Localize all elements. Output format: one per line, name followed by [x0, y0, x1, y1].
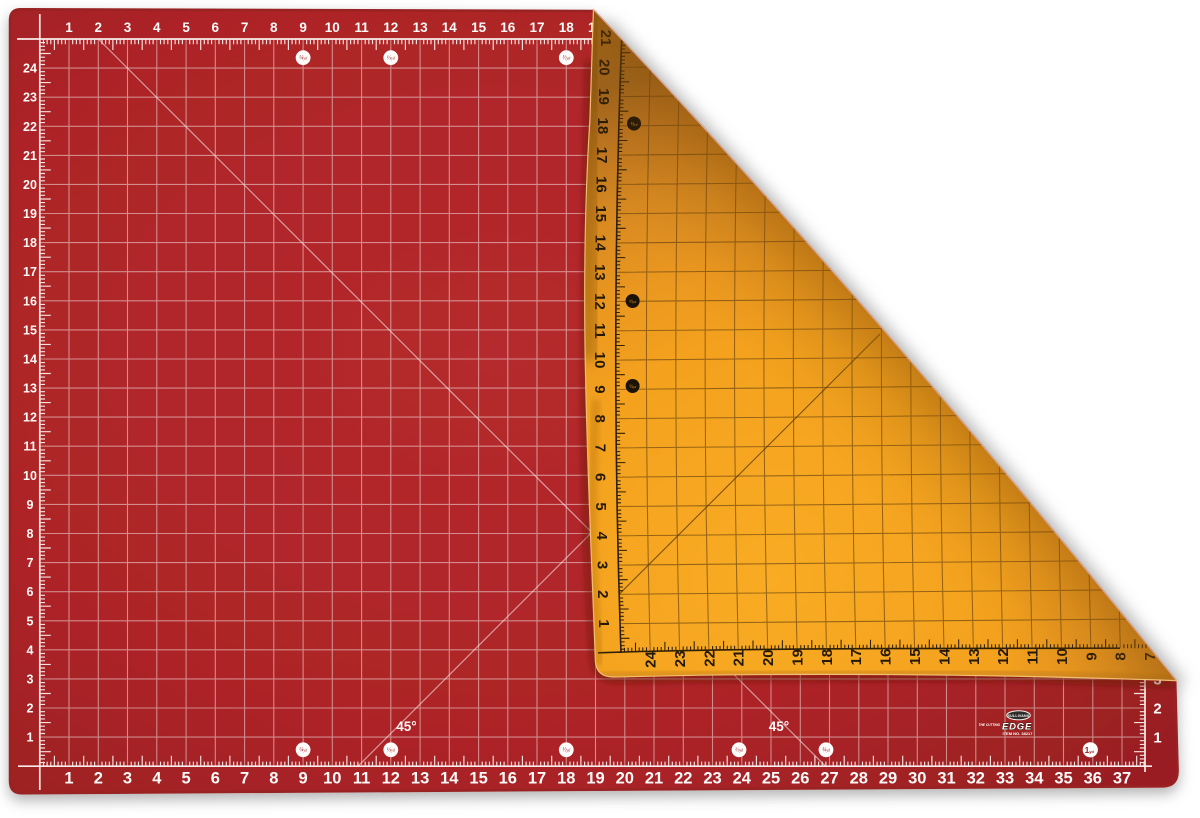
svg-text:13: 13: [411, 769, 429, 787]
svg-text:14: 14: [442, 20, 458, 35]
svg-text:THE CUTTING: THE CUTTING: [979, 723, 1001, 727]
svg-text:11: 11: [23, 440, 36, 454]
svg-text:25: 25: [762, 769, 780, 787]
svg-text:18: 18: [559, 20, 575, 35]
svg-text:23: 23: [703, 769, 721, 787]
svg-text:35: 35: [1054, 769, 1072, 787]
svg-text:18: 18: [23, 236, 37, 250]
svg-text:22: 22: [674, 769, 692, 787]
svg-text:31: 31: [937, 769, 955, 787]
svg-text:8: 8: [27, 527, 34, 541]
svg-text:20: 20: [616, 769, 634, 787]
svg-text:15: 15: [23, 323, 37, 337]
svg-text:5: 5: [182, 20, 190, 35]
svg-text:16: 16: [23, 294, 37, 308]
svg-text:2: 2: [95, 20, 103, 35]
svg-text:12: 12: [383, 20, 398, 35]
svg-text:6: 6: [27, 585, 34, 599]
svg-text:8: 8: [269, 769, 278, 787]
svg-text:16: 16: [500, 20, 516, 35]
svg-text:17: 17: [529, 20, 544, 35]
svg-text:30: 30: [908, 769, 926, 787]
svg-text:6: 6: [211, 769, 220, 787]
svg-text:24: 24: [733, 769, 752, 787]
svg-text:11: 11: [353, 769, 370, 787]
svg-text:2: 2: [94, 769, 103, 787]
svg-text:15: 15: [469, 769, 487, 787]
svg-text:19: 19: [23, 207, 37, 221]
svg-text:15: 15: [471, 20, 487, 35]
svg-text:6: 6: [212, 20, 220, 35]
svg-text:14: 14: [23, 353, 37, 367]
svg-text:10: 10: [325, 20, 340, 35]
svg-text:18: 18: [557, 769, 575, 787]
svg-text:4: 4: [27, 643, 34, 657]
svg-text:17: 17: [528, 769, 546, 787]
svg-text:5: 5: [27, 614, 34, 628]
svg-text:21: 21: [645, 769, 663, 787]
svg-text:10: 10: [23, 469, 37, 483]
svg-text:21: 21: [23, 149, 37, 163]
svg-text:13: 13: [413, 20, 429, 35]
svg-text:4: 4: [152, 769, 162, 787]
svg-text:26: 26: [791, 769, 809, 787]
svg-text:13: 13: [23, 382, 37, 396]
svg-text:3: 3: [123, 769, 132, 787]
svg-text:36: 36: [1084, 769, 1102, 787]
svg-text:14: 14: [440, 769, 459, 787]
svg-text:37: 37: [1113, 769, 1131, 787]
svg-text:1: 1: [64, 769, 73, 787]
svg-text:10: 10: [323, 769, 341, 787]
svg-text:24: 24: [23, 62, 37, 76]
svg-text:45°: 45°: [396, 719, 416, 734]
svg-text:9: 9: [299, 769, 308, 787]
svg-text:22: 22: [23, 120, 37, 134]
svg-text:7: 7: [241, 20, 249, 35]
svg-text:7: 7: [27, 556, 34, 570]
svg-text:5: 5: [182, 769, 191, 787]
svg-text:20: 20: [23, 178, 37, 192]
svg-text:11: 11: [354, 20, 369, 35]
svg-text:16: 16: [499, 769, 517, 787]
svg-text:SULLIVANS: SULLIVANS: [1008, 714, 1030, 718]
svg-text:28: 28: [850, 769, 868, 787]
svg-text:27: 27: [820, 769, 838, 787]
svg-text:3: 3: [27, 672, 34, 686]
svg-text:1: 1: [1153, 730, 1161, 747]
svg-text:9: 9: [299, 20, 307, 35]
svg-text:3: 3: [124, 20, 132, 35]
svg-text:34: 34: [1025, 769, 1044, 787]
svg-text:9: 9: [27, 498, 34, 512]
svg-text:ITEM NO. 38217: ITEM NO. 38217: [1002, 731, 1033, 736]
svg-text:32: 32: [967, 769, 985, 787]
svg-text:2: 2: [1153, 700, 1161, 717]
svg-text:8: 8: [270, 20, 278, 35]
svg-text:2: 2: [27, 702, 34, 716]
svg-text:12: 12: [382, 769, 400, 787]
svg-text:33: 33: [996, 769, 1014, 787]
svg-text:7: 7: [240, 769, 249, 787]
svg-text:17: 17: [23, 265, 37, 279]
svg-text:1: 1: [27, 731, 34, 745]
svg-text:½yd: ½yd: [562, 747, 570, 754]
svg-text:1: 1: [65, 20, 73, 35]
svg-text:12: 12: [23, 411, 37, 425]
svg-text:4: 4: [153, 20, 161, 35]
svg-text:45°: 45°: [769, 719, 789, 734]
svg-text:29: 29: [879, 769, 897, 787]
svg-text:½yd: ½yd: [562, 55, 570, 62]
svg-text:19: 19: [586, 769, 604, 787]
svg-text:23: 23: [23, 91, 37, 105]
